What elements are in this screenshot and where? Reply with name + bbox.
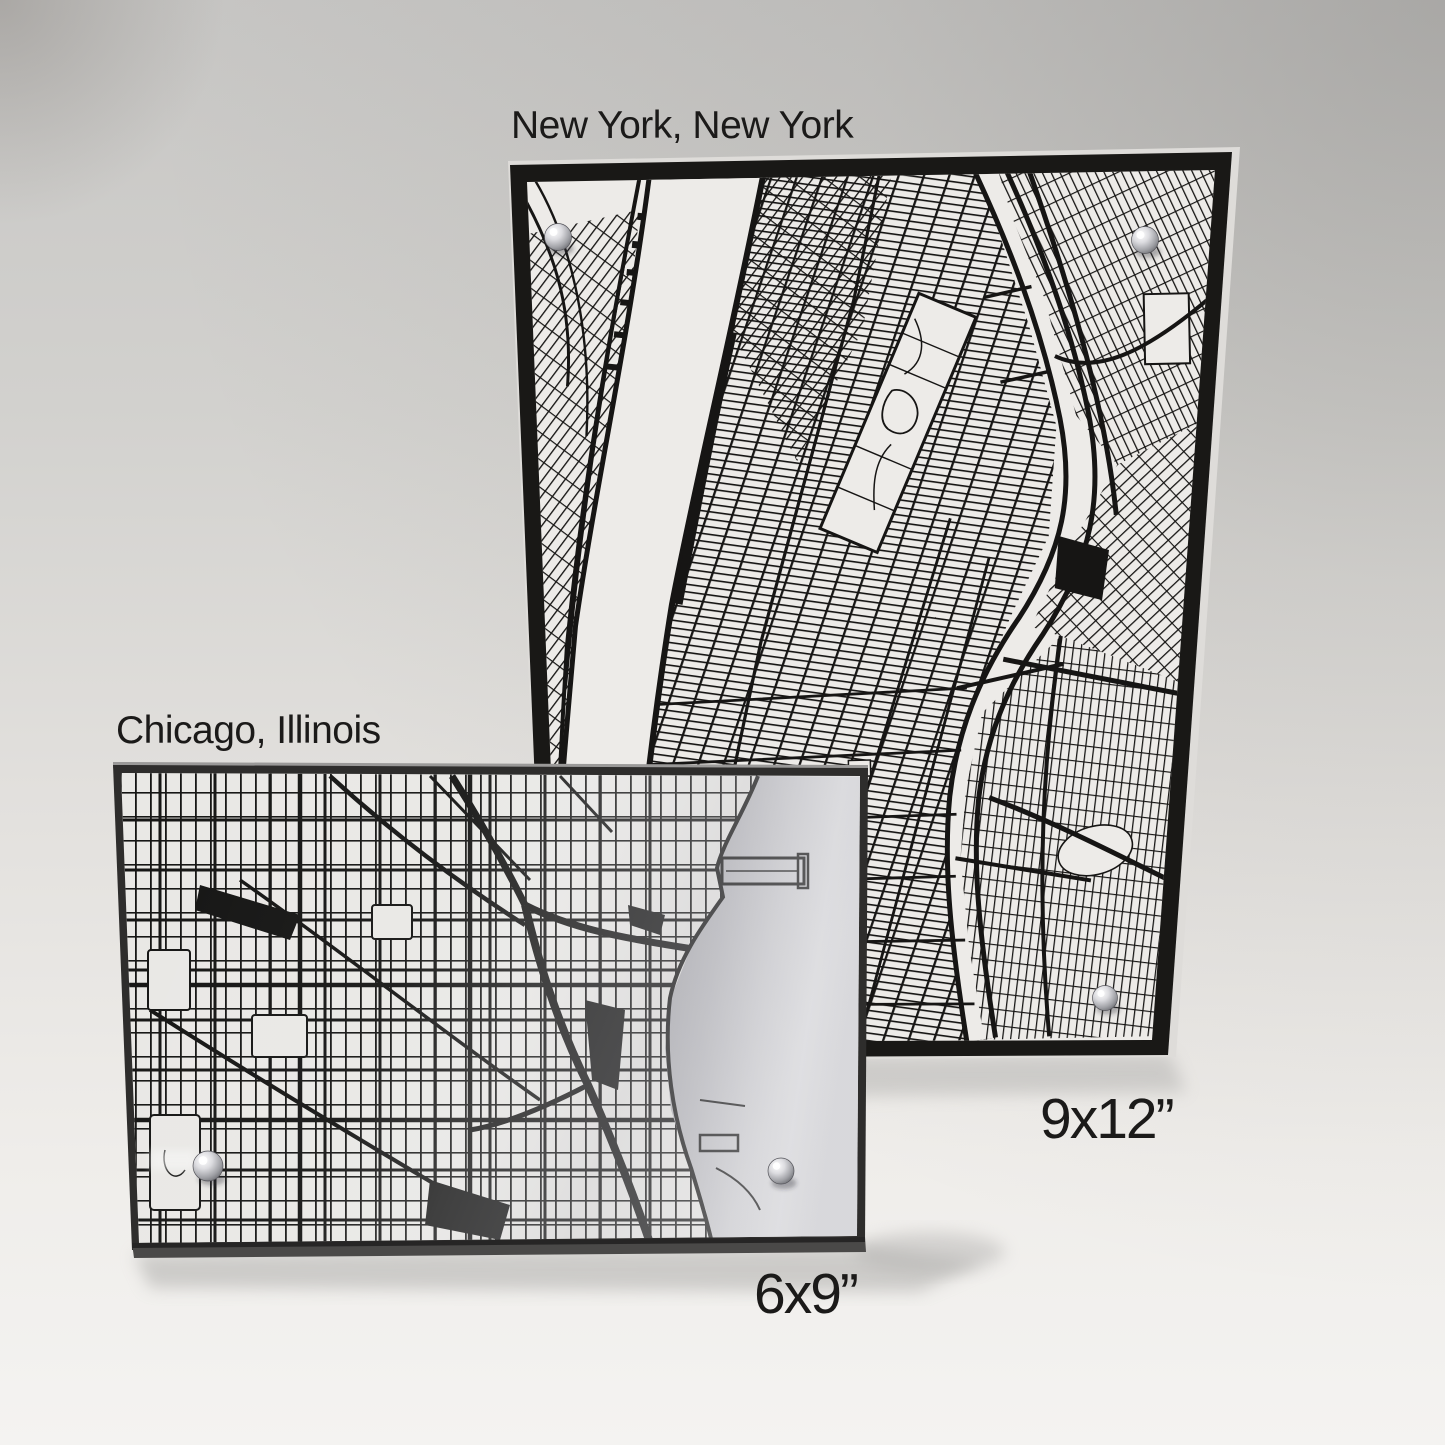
chicago-map-art <box>121 773 860 1248</box>
chicago-corner-shadow <box>855 1232 1005 1272</box>
product-photo: New York, New York Chicago, Illinois 9x1… <box>0 0 1445 1445</box>
backdrop-shading-left <box>0 0 500 500</box>
label-new-york: New York, New York <box>511 104 853 148</box>
label-chicago: Chicago, Illinois <box>116 709 381 753</box>
size-label-9x12: 9x12” <box>1040 1086 1173 1152</box>
size-label-6x9: 6x9” <box>754 1261 857 1327</box>
pin-reflection-streak <box>150 1150 196 1170</box>
chicago-print <box>113 762 868 1258</box>
acrylic-gloss <box>121 773 860 1243</box>
